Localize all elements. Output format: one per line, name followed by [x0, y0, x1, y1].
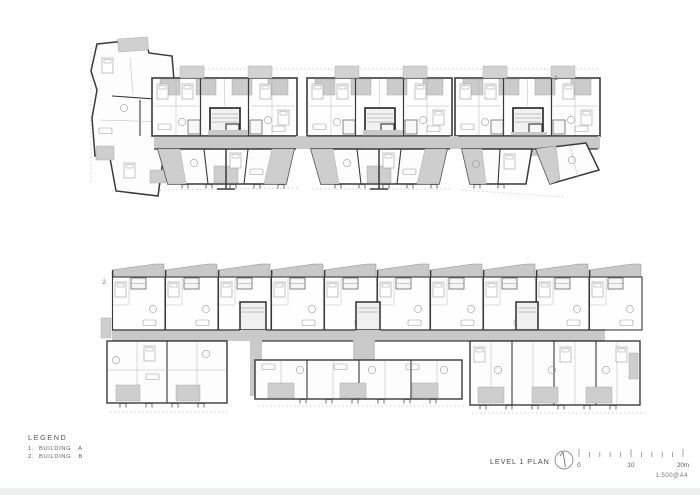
- legend-item-number: 1.: [28, 446, 39, 454]
- site-boundary-dashes: [110, 406, 645, 413]
- building-a-upper-cluster: [455, 66, 600, 136]
- building-b-upper-row: [101, 277, 642, 338]
- legend-item-number: 2.: [28, 454, 39, 462]
- building-b-sawtooth-balconies: [112, 264, 641, 278]
- legend: LEGEND 1. BUILDING A 2. BUILDING B: [28, 433, 83, 461]
- scale-tick-20m: 20m: [677, 462, 689, 469]
- building-a-bottom-tabs: [182, 185, 504, 189]
- scale-tick-10: 10: [628, 462, 635, 469]
- building-a-lower-row: [462, 149, 532, 184]
- building-a-lower-row: [311, 149, 447, 189]
- building-a-upper-cluster: [307, 66, 452, 136]
- scale-tick-0: 0: [577, 462, 581, 469]
- legend-item-building-a: 1. BUILDING A: [28, 446, 83, 454]
- scale-ratio: 1:500@A4: [655, 472, 688, 479]
- building-a-lower-row: [158, 149, 294, 189]
- plan-title: LEVEL 1 PLAN: [490, 457, 550, 466]
- building-b-lower-right-block: [470, 341, 640, 405]
- building-b-lower-middle-wing: [255, 360, 462, 399]
- legend-item-label: BUILDING A: [39, 446, 83, 454]
- scale-bar: 0 10 20m 1:500@A4: [577, 449, 689, 479]
- building-b-plan: 2: [101, 264, 645, 413]
- building-b-label: 2: [102, 279, 106, 286]
- legend-item-label: BUILDING B: [39, 454, 83, 462]
- building-a-label: 1: [554, 75, 558, 82]
- north-arrow-icon: [555, 451, 573, 469]
- building-b-lower-left-block: [107, 341, 227, 403]
- drawing-sheet: 1: [0, 0, 700, 495]
- building-a-end-unit: [536, 143, 599, 184]
- legend-title: LEGEND: [28, 433, 83, 442]
- legend-item-building-b: 2. BUILDING B: [28, 454, 83, 462]
- plan-canvas: 1: [0, 0, 700, 495]
- building-a-plan: 1: [91, 37, 600, 197]
- sheet-edge-strip: [0, 488, 700, 495]
